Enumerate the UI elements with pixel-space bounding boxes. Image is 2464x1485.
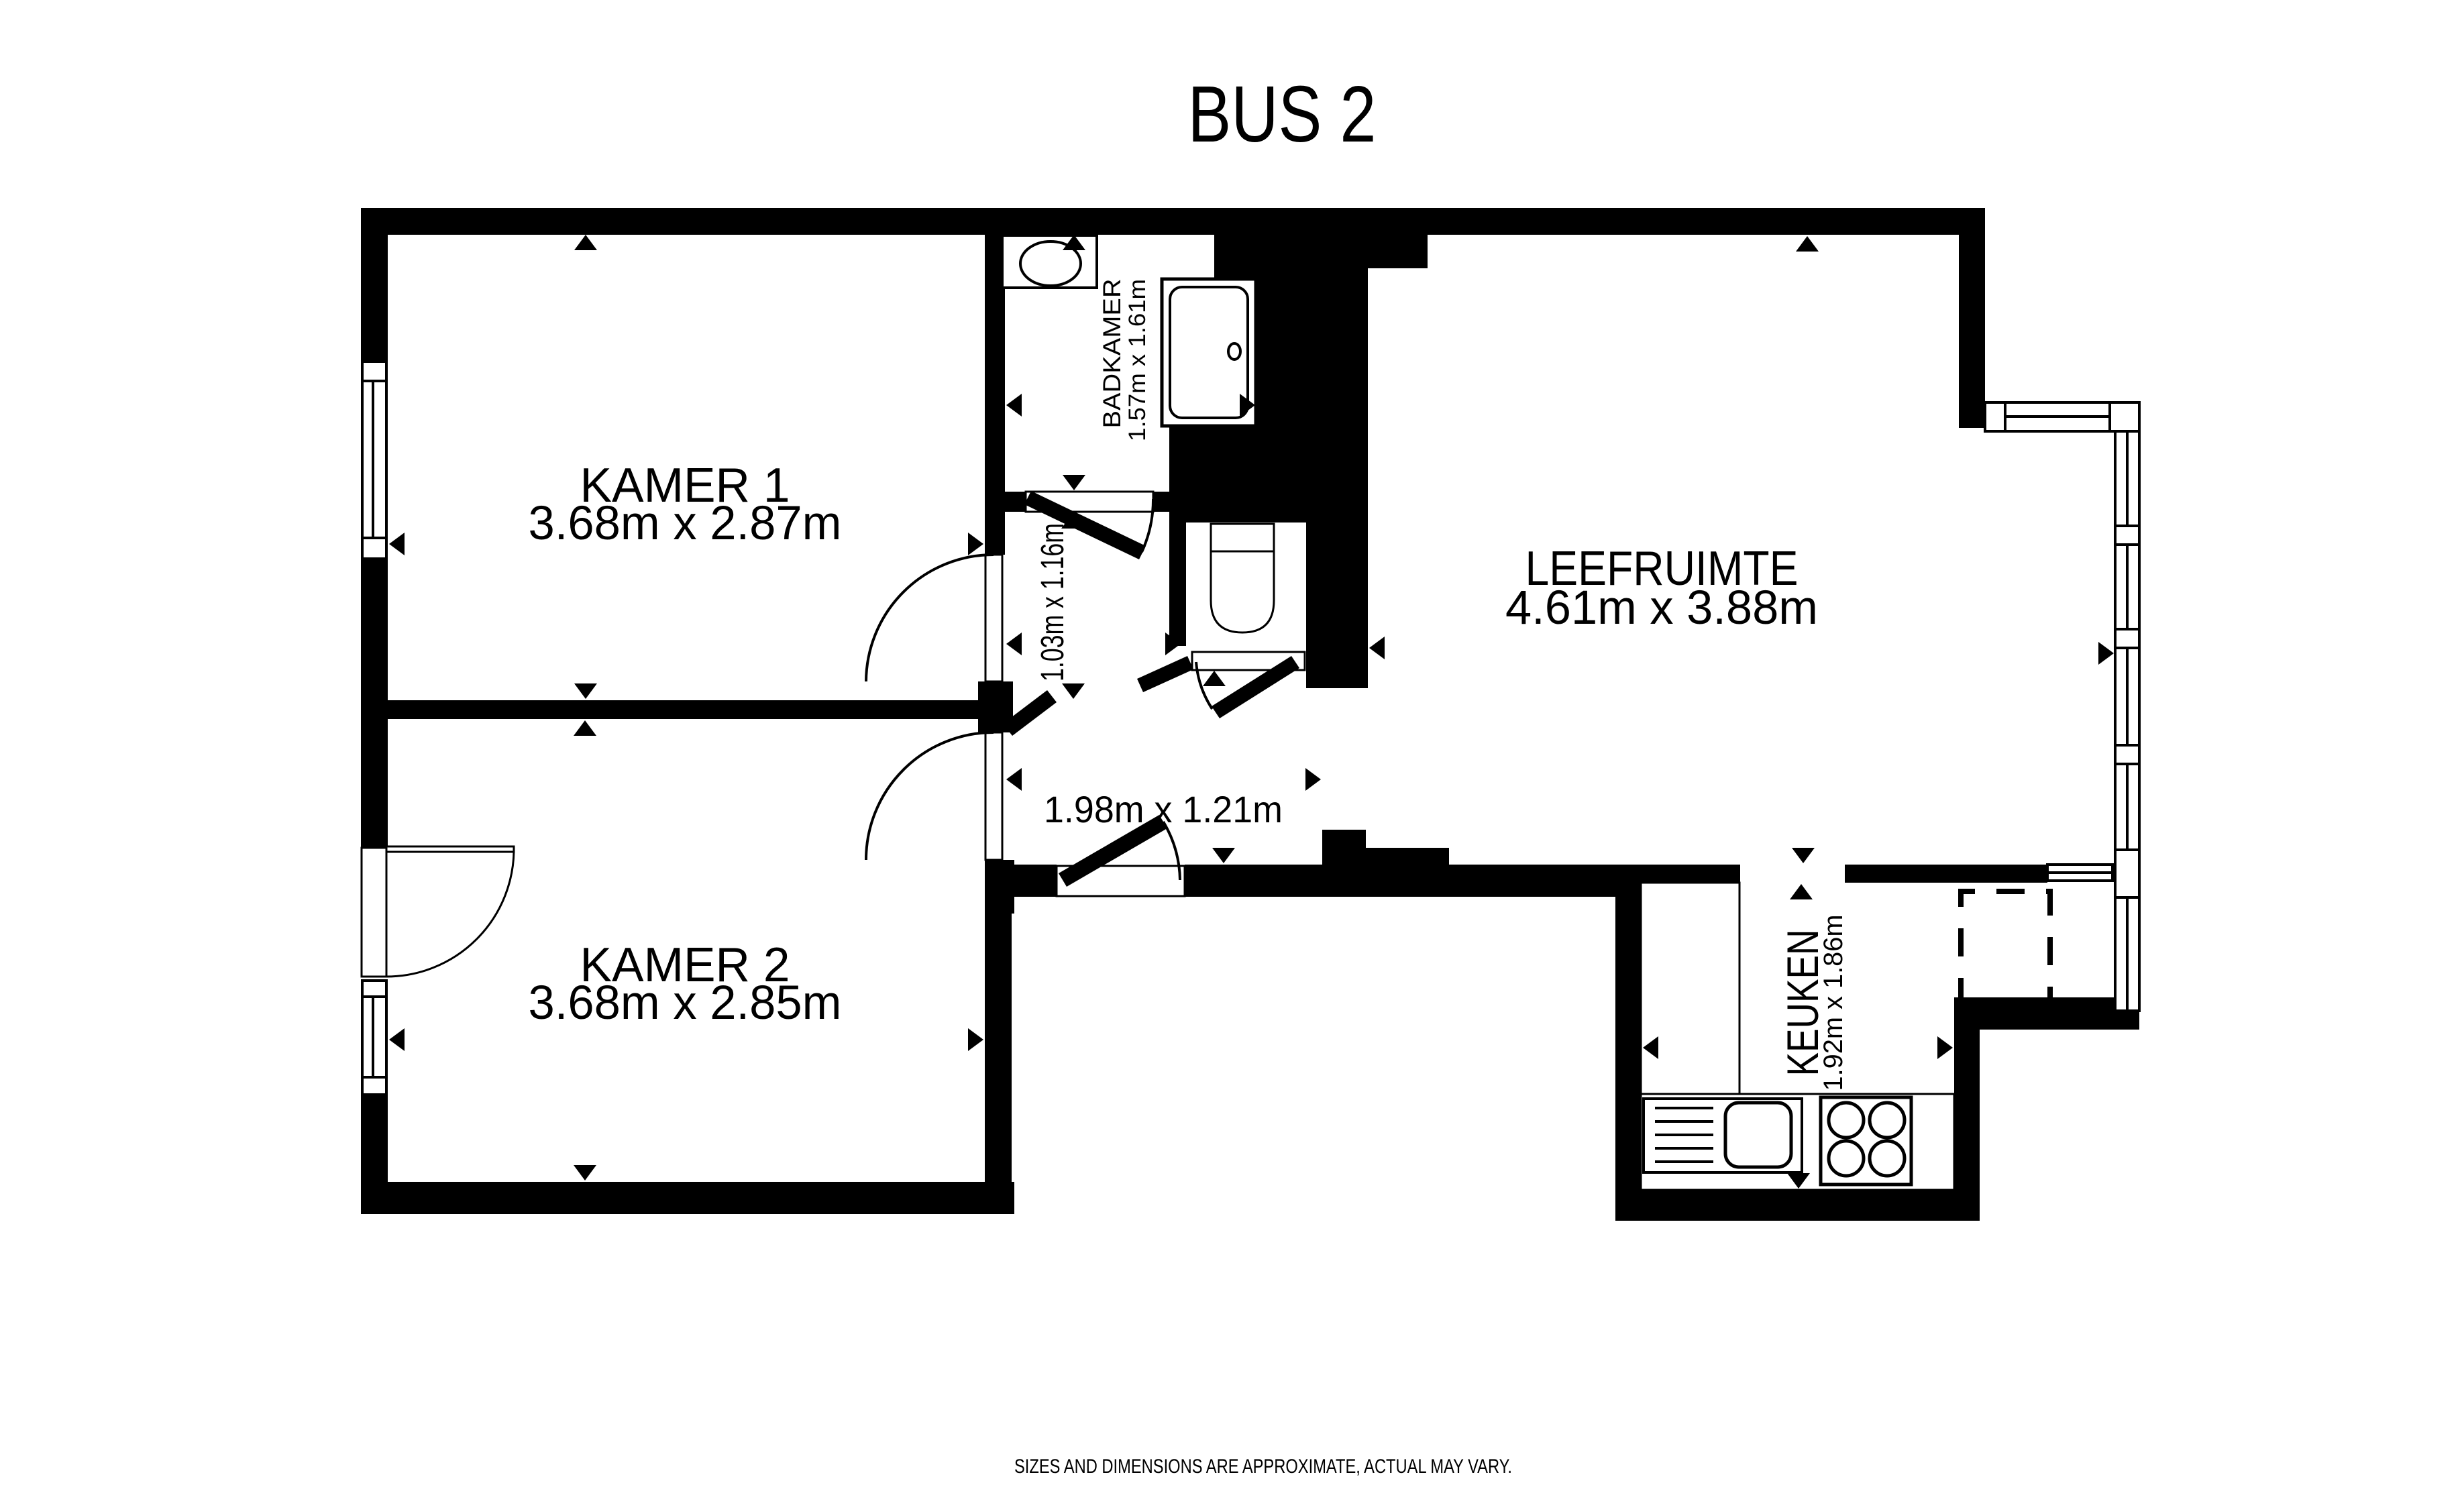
svg-text:1.57m x 1.61m: 1.57m x 1.61m — [1124, 279, 1150, 441]
svg-text:BUS 2: BUS 2 — [1188, 70, 1377, 159]
svg-text:1.98m x 1.21m: 1.98m x 1.21m — [1044, 788, 1283, 830]
svg-text:4.61m x 3.88m: 4.61m x 3.88m — [1505, 582, 1818, 635]
svg-text:BADKAMER: BADKAMER — [1098, 279, 1126, 429]
svg-text:1.03m x 1.16m: 1.03m x 1.16m — [1035, 523, 1071, 681]
svg-text:3.68m x 2.85m: 3.68m x 2.85m — [529, 977, 842, 1030]
svg-text:SIZES AND DIMENSIONS ARE APPRO: SIZES AND DIMENSIONS ARE APPROXIMATE, AC… — [1014, 1455, 1512, 1478]
svg-text:1.92m x 1.86m: 1.92m x 1.86m — [1819, 915, 1848, 1091]
svg-text:3.68m x 2.87m: 3.68m x 2.87m — [529, 497, 842, 550]
